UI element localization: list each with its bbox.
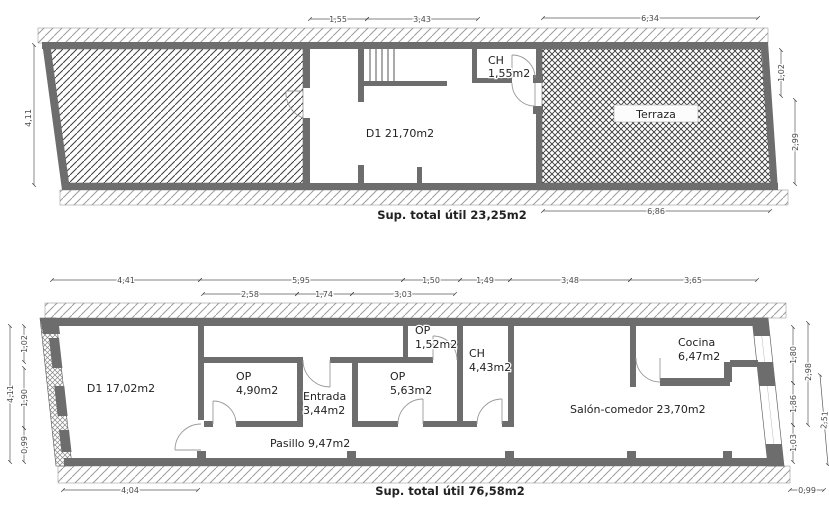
- dim-upper-right-2: 2,99: [791, 133, 800, 151]
- dim-lower-right-total: 2,98: [804, 363, 813, 381]
- upper-ground-hatch-top: [38, 28, 768, 43]
- room-label-entrada-area: 3,44m2: [303, 404, 345, 417]
- dim-lower-top2-3: 3,03: [394, 290, 412, 299]
- dim-lower-left-2: 1,90: [20, 389, 29, 407]
- dim-lower-left-1: 1,02: [20, 335, 29, 353]
- dim-lower-right-2: 1,86: [789, 395, 798, 413]
- room-label-terraza: Terraza: [635, 108, 676, 121]
- dim-upper-right-1: 1,02: [777, 64, 786, 82]
- room-label-salon: Salón-comedor 23,70m2: [570, 403, 706, 416]
- room-label-pasillo: Pasillo 9,47m2: [270, 437, 350, 450]
- dim-lower-left-total: 4,11: [6, 385, 15, 403]
- room-label-d1-lower: D1 17,02m2: [87, 382, 155, 395]
- room-label-op3-name: OP: [415, 324, 431, 337]
- upper-plan: D1 21,70m2 CH 1,55m2 Terraza Sup. total …: [24, 14, 800, 222]
- lower-ground-hatch-bottom: [58, 466, 790, 483]
- upper-ground-hatch-bottom: [60, 190, 788, 205]
- dim-lower-bottom-right: 0,99: [798, 486, 816, 495]
- room-label-op1-name: OP: [236, 370, 252, 383]
- dim-upper-top-2: 3,43: [413, 15, 431, 24]
- dim-lower-left-3: 0,99: [20, 436, 29, 454]
- room-label-cocina-area: 6,47m2: [678, 350, 720, 363]
- room-label-op3-area: 1,52m2: [415, 338, 457, 351]
- dim-lower-top1-6: 3,65: [684, 276, 702, 285]
- room-label-ch-lower-name: CH: [469, 347, 485, 360]
- dim-lower-top2-2: 1,74: [315, 290, 333, 299]
- dim-lower-right-3: 1,03: [789, 434, 798, 452]
- room-label-op1-area: 4,90m2: [236, 384, 278, 397]
- room-label-d1-upper: D1 21,70m2: [366, 127, 434, 140]
- dim-upper-top-1: 1,55: [329, 15, 347, 24]
- dim-lower-top2-1: 2,58: [241, 290, 259, 299]
- dim-lower-top1-2: 5,95: [292, 276, 310, 285]
- room-label-op2-name: OP: [390, 370, 406, 383]
- lower-left-facade: [40, 318, 72, 466]
- dim-lower-right-outer: 2,51: [819, 411, 829, 430]
- room-label-ch-upper-area: 1,55m2: [488, 67, 530, 80]
- dim-lower-top1-3: 1,50: [422, 276, 440, 285]
- dim-upper-left: 4,11: [24, 109, 33, 127]
- lower-plan: D1 17,02m2 OP 4,90m2 Entrada 3,44m2 OP 5…: [6, 276, 829, 498]
- dim-lower-bottom-left: 4,04: [121, 486, 139, 495]
- dim-upper-bottom: 6,86: [647, 207, 665, 216]
- floor-plan-page: D1 21,70m2 CH 1,55m2 Terraza Sup. total …: [0, 0, 829, 508]
- dim-lower-top1-5: 3,48: [561, 276, 579, 285]
- room-label-cocina-name: Cocina: [678, 336, 715, 349]
- stairs: [370, 49, 394, 81]
- room-label-entrada-name: Entrada: [303, 390, 346, 403]
- floor-plan-canvas: D1 21,70m2 CH 1,55m2 Terraza Sup. total …: [0, 0, 829, 508]
- upper-total-label: Sup. total útil 23,25m2: [377, 208, 527, 222]
- dim-upper-top-3: 6,34: [641, 14, 659, 23]
- dim-lower-top1-4: 1,49: [476, 276, 494, 285]
- upper-under-roof-area: [50, 49, 303, 183]
- room-label-ch-upper-name: CH: [488, 54, 504, 67]
- room-label-op2-area: 5,63m2: [390, 384, 432, 397]
- lower-total-label: Sup. total útil 76,58m2: [375, 484, 525, 498]
- lower-right-facade: [752, 318, 784, 466]
- lower-ground-hatch-top: [45, 303, 786, 318]
- dim-lower-top1-1: 4,41: [117, 276, 135, 285]
- room-label-ch-lower-area: 4,43m2: [469, 361, 511, 374]
- dim-lower-right-1: 1,80: [789, 346, 798, 364]
